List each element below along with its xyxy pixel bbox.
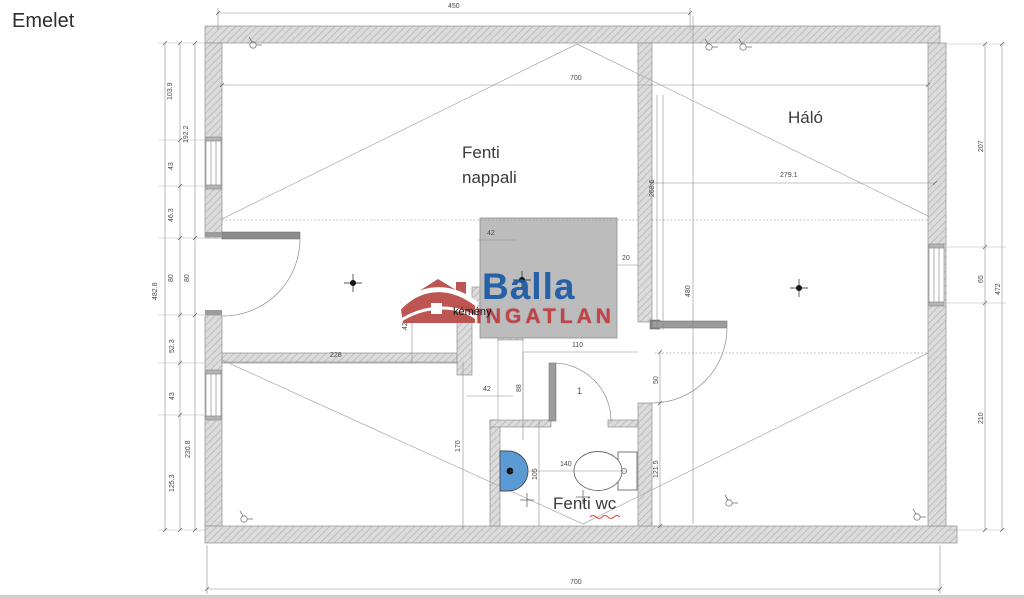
dim-left-1: 103.9	[167, 82, 174, 100]
dim-wc-wall-170: 170	[455, 440, 462, 452]
dim-left-10: 125.3	[169, 474, 176, 492]
dim-left-4: 46.3	[168, 208, 175, 222]
dim-hall-121-5: 121.5	[653, 460, 660, 478]
dim-bedroom-height: 268.5	[649, 179, 656, 197]
door-left	[205, 232, 300, 316]
dim-wc-105: 105	[532, 468, 539, 480]
window-right	[929, 244, 944, 306]
dim-gap-20: 20	[622, 255, 630, 262]
door-bedroom	[650, 320, 727, 403]
door-number-label: 1	[577, 386, 582, 396]
dim-bedroom-width: 279.1	[780, 172, 798, 179]
chimney-flue-shaft	[498, 340, 523, 420]
dim-hall-50: 50	[653, 376, 660, 384]
balla-ingatlan-watermark: Balla INGATLAN	[398, 268, 628, 332]
room-label-living-line2: nappali	[462, 168, 517, 188]
floorplan-page: Emelet Fenti nappali Háló Fenti wc kémén…	[0, 0, 1024, 598]
dim-bottom-width: 700	[570, 579, 582, 586]
dim-left-5: 80	[168, 274, 175, 282]
page-title: Emelet	[12, 10, 74, 33]
logo-house-icon	[398, 273, 478, 329]
dim-left-8: 43	[169, 392, 176, 400]
chimney-label: kémény	[453, 306, 492, 318]
window-left-upper	[206, 137, 221, 189]
dim-right-top: 207	[978, 140, 985, 152]
room-label-wc: Fenti wc	[553, 494, 616, 514]
wc-sink	[500, 451, 534, 507]
dim-shaft-110: 110	[572, 342, 583, 349]
dim-shaft-42-bottom: 42	[483, 386, 491, 393]
room-label-bedroom: Háló	[788, 108, 823, 128]
dim-chimney-42-top: 42	[487, 230, 495, 237]
dim-shaft-88: 88	[516, 384, 523, 392]
room-label-living-line1: Fenti	[462, 143, 500, 163]
dim-left-total: 482.8	[152, 282, 159, 300]
dim-left-9: 230.8	[185, 440, 192, 458]
dim-top-width: 450	[448, 3, 460, 10]
dim-room-width-228: 228	[330, 352, 342, 359]
dim-left-2: 192.2	[183, 125, 190, 143]
dim-right-bottom: 210	[978, 412, 985, 424]
dim-left-7: 52.3	[169, 339, 176, 353]
dim-interior-width: 700	[570, 75, 582, 82]
logo-brand-text: Balla	[482, 266, 575, 308]
dim-left-6: 80	[184, 274, 191, 282]
dim-right-total: 472	[995, 283, 1002, 295]
dim-left-3: 43	[168, 162, 175, 170]
window-left-lower	[206, 370, 221, 420]
dim-hall-height: 480	[685, 285, 692, 297]
dim-wc-140: 140	[560, 461, 572, 468]
logo-subtitle-text: INGATLAN	[476, 305, 615, 329]
dim-right-window: 65	[978, 275, 985, 283]
